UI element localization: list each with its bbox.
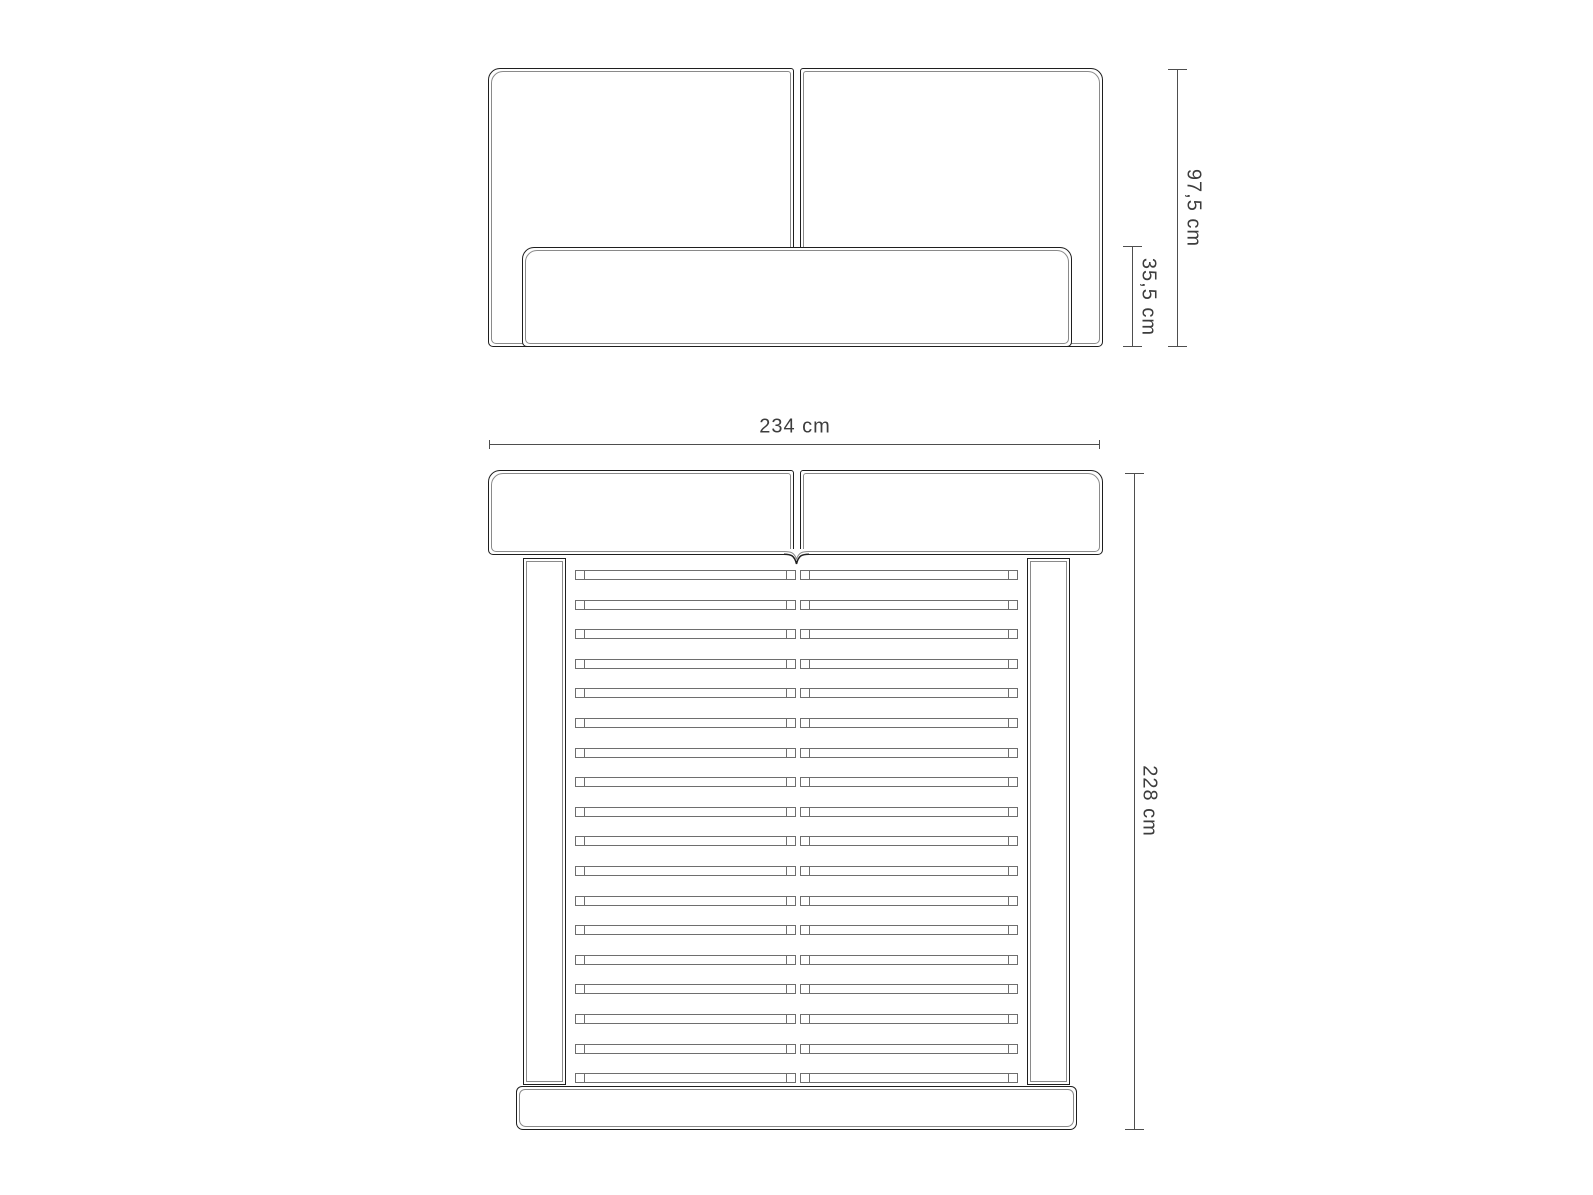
slat-right — [800, 659, 1018, 669]
dimension-label-base-height: 35,5 cm — [1137, 258, 1160, 336]
slat-left — [575, 1073, 796, 1083]
slat-right — [800, 925, 1018, 935]
slat-left — [575, 896, 796, 906]
slat-row — [575, 600, 1018, 610]
dimension-line-total-height — [1177, 69, 1178, 347]
slat-row — [575, 688, 1018, 698]
headboard-center-notch — [784, 549, 809, 567]
bed-base-front-rail — [522, 247, 1072, 347]
slat-row — [575, 1073, 1018, 1083]
dimension-line-width — [489, 444, 1100, 445]
slat-right — [800, 1014, 1018, 1024]
slat-row — [575, 629, 1018, 639]
dimension-label-total-height: 97,5 cm — [1182, 169, 1205, 247]
dimension-line-length — [1134, 473, 1135, 1130]
slat-left — [575, 570, 796, 580]
slat-row — [575, 984, 1018, 994]
slat-left — [575, 836, 796, 846]
slat-left — [575, 659, 796, 669]
slat-area — [0, 0, 1593, 1195]
slat-right — [800, 807, 1018, 817]
slat-right — [800, 777, 1018, 787]
slat-row — [575, 570, 1018, 580]
slat-right — [800, 748, 1018, 758]
slat-left — [575, 748, 796, 758]
bed-top-plan-view: 234 cm 228 cm — [0, 0, 1593, 1195]
slat-row — [575, 748, 1018, 758]
slat-row — [575, 1014, 1018, 1024]
slat-left — [575, 984, 796, 994]
slat-right — [800, 600, 1018, 610]
slat-row — [575, 896, 1018, 906]
slat-right — [800, 688, 1018, 698]
slat-row — [575, 718, 1018, 728]
footboard-panel-top — [516, 1086, 1077, 1130]
slat-left — [575, 718, 796, 728]
slat-left — [575, 866, 796, 876]
slat-left — [575, 1014, 796, 1024]
slat-left — [575, 925, 796, 935]
slat-right — [800, 570, 1018, 580]
slat-left — [575, 600, 796, 610]
slat-right — [800, 984, 1018, 994]
slat-right — [800, 1073, 1018, 1083]
slat-left — [575, 807, 796, 817]
slat-row — [575, 955, 1018, 965]
slat-row — [575, 1044, 1018, 1054]
slat-row — [575, 836, 1018, 846]
slat-left — [575, 1044, 796, 1054]
slat-row — [575, 777, 1018, 787]
dimension-label-width: 234 cm — [759, 416, 831, 439]
slat-right — [800, 836, 1018, 846]
slat-right — [800, 896, 1018, 906]
slat-right — [800, 629, 1018, 639]
slat-right — [800, 718, 1018, 728]
slat-row — [575, 866, 1018, 876]
slat-right — [800, 1044, 1018, 1054]
slat-left — [575, 955, 796, 965]
slat-row — [575, 807, 1018, 817]
slat-row — [575, 925, 1018, 935]
slat-right — [800, 866, 1018, 876]
dimension-line-base-height — [1132, 246, 1133, 347]
slat-right — [800, 955, 1018, 965]
dimension-label-length: 228 cm — [1138, 765, 1161, 837]
slat-row — [575, 659, 1018, 669]
slat-left — [575, 629, 796, 639]
technical-drawing-canvas: 97,5 cm 35,5 cm 234 cm 228 cm — [0, 0, 1593, 1195]
slat-left — [575, 688, 796, 698]
slat-left — [575, 777, 796, 787]
